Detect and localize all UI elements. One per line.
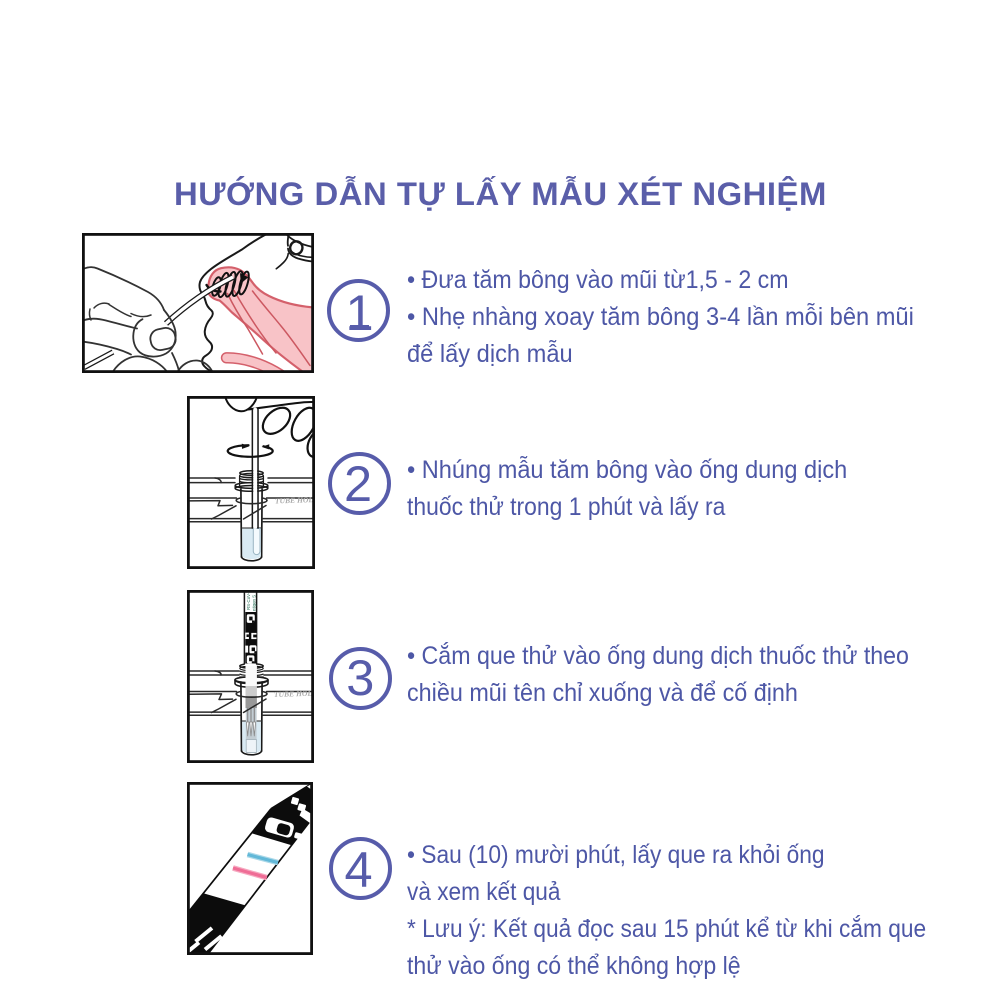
svg-text:RS-CoV-2 A: RS-CoV-2 A: [246, 590, 251, 610]
svg-text:TUBE HOL: TUBE HOL: [274, 689, 313, 699]
svg-text:TUBE HOL: TUBE HOL: [275, 495, 314, 505]
svg-text:ntigen S: ntigen S: [251, 595, 256, 611]
